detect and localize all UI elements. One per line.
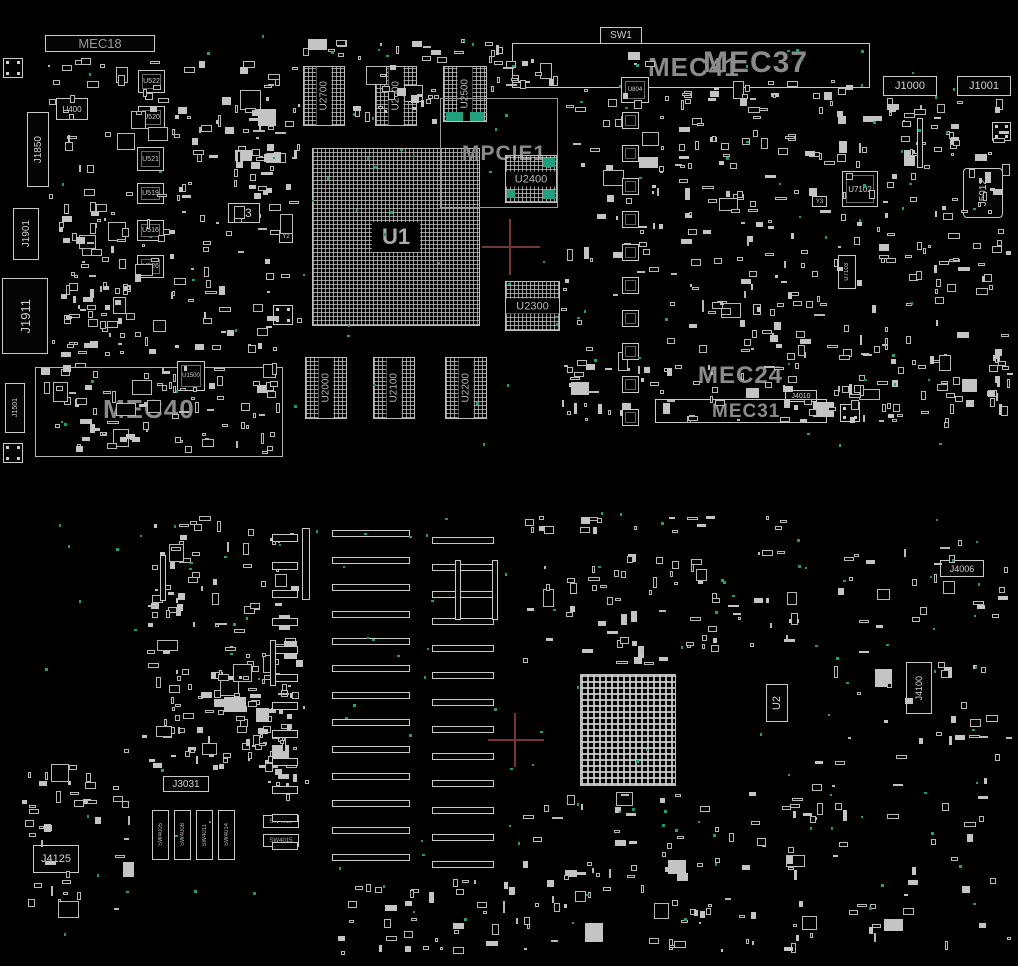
smd-part (660, 798, 665, 803)
smd-part (920, 607, 927, 615)
smd-part (753, 130, 758, 137)
smd-part (824, 161, 835, 165)
ic-u521-label: U521 (142, 156, 159, 163)
smd-part (774, 322, 781, 330)
smd-part (884, 720, 888, 723)
smd-part (191, 397, 195, 400)
smd-part (156, 677, 161, 688)
ic-u1500[interactable]: U1500 (177, 361, 205, 391)
smd-part (279, 544, 281, 546)
smd-part (253, 381, 260, 386)
smd-part (946, 131, 948, 134)
smd-part (89, 275, 96, 277)
ic-u804-label: U804 (628, 87, 642, 93)
smd-part (1006, 737, 1012, 739)
connector-j1911-label: J1911 (18, 299, 33, 333)
smd-part (332, 854, 410, 861)
smd-part (660, 390, 664, 394)
smd-part (262, 679, 265, 684)
smd-part (770, 335, 778, 342)
smd-part (885, 327, 888, 332)
smd-part (914, 109, 926, 115)
smd-part (380, 74, 386, 77)
smd-part (68, 135, 70, 142)
smd-part (246, 739, 250, 746)
smd-part (79, 600, 81, 603)
smd-part (87, 165, 94, 173)
smd-part (267, 291, 270, 293)
smd-part (248, 701, 257, 707)
smd-part (731, 209, 740, 213)
smd-part (51, 764, 69, 782)
smd-part (432, 672, 494, 679)
smd-part (524, 948, 527, 950)
smd-part (888, 414, 894, 418)
smd-part (674, 941, 686, 948)
smd-part (938, 662, 945, 668)
smd-part (774, 367, 784, 370)
smd-part (742, 94, 748, 99)
smd-part (250, 174, 256, 181)
smd-part (254, 193, 261, 199)
smd-part (386, 55, 389, 57)
smd-part (590, 148, 600, 152)
smd-part (573, 143, 581, 145)
smd-part (669, 517, 675, 519)
smd-part (111, 246, 114, 253)
ic-u2200[interactable]: U2200 (445, 357, 487, 419)
smd-part (348, 901, 357, 908)
smd-part (28, 899, 35, 907)
region-banner-mec18-label: MEC18 (78, 36, 121, 51)
smd-part (118, 75, 125, 86)
smd-part (935, 297, 944, 304)
smd-part (738, 617, 741, 620)
smd-part (235, 105, 238, 113)
smd-part (59, 222, 64, 228)
smd-part (887, 233, 895, 236)
smd-part (397, 655, 400, 657)
smd-part (681, 646, 683, 649)
smd-part (53, 80, 60, 85)
smd-part (751, 821, 760, 825)
smd-part (621, 614, 627, 625)
smd-part (901, 136, 910, 142)
smd-part (267, 316, 279, 321)
smd-part (272, 786, 298, 794)
smd-part (887, 182, 894, 188)
smd-part (88, 311, 93, 318)
smd-part (34, 883, 42, 888)
smd-part (928, 379, 930, 381)
smd-part (580, 527, 590, 533)
smd-part (940, 547, 950, 549)
smd-part (332, 611, 410, 618)
smd-part (89, 73, 91, 76)
smd-part (140, 535, 142, 537)
smd-part (982, 276, 985, 282)
smd-part (866, 560, 875, 564)
pcb-board-view: MEC18 MEC41 MEC37 SW1 J1850 J1901 J1911 … (0, 0, 1018, 966)
connector-j1501[interactable]: J1501 (5, 383, 25, 433)
smd-part (688, 163, 692, 169)
switch-sw1[interactable]: SW1 (600, 27, 642, 44)
smd-part (784, 400, 790, 408)
smd-part (61, 352, 71, 357)
smd-part (904, 549, 906, 557)
smd-part (760, 733, 762, 736)
smd-part (879, 420, 884, 422)
crystal-y3[interactable]: Y3 (812, 196, 827, 207)
smd-part (286, 184, 291, 190)
smd-part (918, 365, 926, 369)
smd-part (126, 313, 135, 320)
smd-part (863, 184, 866, 187)
smd-part (708, 311, 716, 314)
smd-part (597, 518, 602, 523)
smd-part (640, 230, 644, 234)
smd-part (768, 220, 772, 223)
connector-j1901[interactable]: J1901 (13, 208, 39, 260)
smd-part (217, 521, 221, 532)
smd-part (312, 200, 314, 202)
smd-part (874, 933, 876, 942)
smd-part (384, 919, 391, 928)
smd-part (809, 409, 817, 416)
smd-part (150, 61, 160, 64)
smd-part (97, 874, 99, 877)
switch-sw4011[interactable]: SW4011 (196, 810, 213, 860)
smd-part (587, 391, 599, 393)
smd-part (331, 51, 334, 54)
smd-part (188, 182, 192, 185)
smd-part (712, 387, 718, 393)
smd-part (223, 758, 228, 763)
smd-part (673, 860, 679, 865)
smd-part (91, 380, 94, 383)
smd-part (170, 254, 174, 259)
smd-part (147, 219, 150, 229)
smd-part (988, 152, 992, 155)
smd-part (955, 735, 965, 740)
smd-part (332, 530, 410, 537)
smd-part (543, 589, 554, 607)
smd-part (697, 863, 703, 867)
smd-part (628, 368, 630, 371)
smd-part (412, 107, 417, 110)
via-array (580, 674, 676, 786)
smd-part (157, 194, 167, 197)
smd-part (688, 416, 698, 421)
smd-part (453, 947, 464, 954)
smd-part (657, 188, 659, 196)
connector-j1001[interactable]: J1001 (957, 76, 1011, 96)
smd-part (585, 923, 603, 942)
smd-part (207, 409, 214, 411)
smd-part (272, 758, 298, 766)
smd-part (405, 946, 411, 952)
connector-j1000[interactable]: J1000 (883, 76, 937, 96)
smd-part (787, 353, 795, 360)
smd-part (177, 195, 180, 201)
smd-part (196, 756, 198, 764)
smd-part (175, 704, 181, 707)
smd-part (105, 305, 110, 310)
smd-part (78, 305, 80, 309)
smd-part (725, 898, 731, 900)
smd-part (453, 923, 464, 929)
smd-part (649, 267, 659, 272)
smd-part (587, 862, 592, 866)
smd-part (592, 868, 594, 873)
ic-u521[interactable]: U521 (137, 147, 164, 171)
smd-part (889, 106, 896, 112)
smd-part (836, 657, 839, 660)
smd-part (746, 141, 749, 143)
smd-part (775, 526, 782, 530)
smd-part (663, 403, 670, 414)
smd-part (84, 343, 92, 348)
ic-u2300[interactable]: U2300 (505, 281, 560, 331)
smd-part (751, 912, 756, 919)
smd-part (172, 414, 179, 419)
smd-part (942, 206, 946, 210)
smd-part (463, 40, 465, 42)
smd-part (928, 245, 931, 248)
smd-part (903, 908, 914, 915)
smd-part (935, 289, 938, 294)
smd-part (697, 524, 706, 527)
ic-u2000[interactable]: U2000 (305, 357, 347, 419)
smd-part (887, 683, 892, 688)
smd-part (212, 593, 219, 605)
smd-part (639, 242, 647, 247)
smd-part (171, 547, 181, 551)
smd-part (893, 784, 903, 786)
ic-u2100[interactable]: U2100 (373, 357, 415, 419)
smd-part (936, 519, 938, 521)
smd-part (410, 890, 414, 898)
smd-part (919, 738, 923, 744)
smd-part (302, 528, 310, 600)
smd-part (567, 367, 573, 373)
smd-part (243, 543, 249, 555)
ic-u7103-label: U7103 (844, 263, 850, 281)
smd-part (378, 106, 383, 109)
smd-part (846, 85, 853, 90)
smd-part (886, 644, 889, 646)
smd-part (267, 391, 276, 398)
connector-j1850[interactable]: J1850 (27, 112, 49, 187)
smd-part (90, 202, 96, 212)
smd-part (752, 330, 757, 338)
smd-part (367, 637, 369, 639)
smd-part (1007, 379, 1010, 388)
smd-part (753, 116, 761, 119)
ic-u2[interactable]: U2 (766, 684, 788, 722)
smd-part (584, 310, 586, 313)
smd-part (891, 359, 896, 364)
smd-part (843, 192, 846, 199)
smd-part (432, 861, 494, 868)
smd-part (41, 368, 50, 375)
smd-part (205, 710, 214, 713)
smd-part (146, 429, 148, 432)
smd-part (275, 769, 282, 775)
smd-part (268, 781, 271, 783)
connector-j4125[interactable]: J4125 (33, 845, 79, 873)
smd-part (592, 585, 597, 591)
connector-j4100[interactable]: J4100 (906, 662, 932, 714)
smd-part (253, 304, 263, 312)
smd-part (438, 262, 440, 264)
smd-part (677, 836, 684, 839)
smd-part (107, 421, 119, 424)
switch-sw4005[interactable]: SW4005 (152, 810, 169, 860)
smd-part (702, 186, 714, 189)
smd-part (176, 611, 181, 616)
smd-part (620, 637, 629, 644)
smd-part (345, 717, 348, 719)
smd-part (700, 806, 710, 812)
smd-part (248, 345, 256, 353)
smd-part (464, 918, 467, 921)
smd-part (202, 439, 214, 447)
smd-part (908, 880, 918, 885)
smd-part (184, 67, 195, 73)
smd-part (856, 161, 860, 168)
smd-part (144, 373, 149, 379)
smd-part (622, 112, 639, 129)
smd-part (720, 303, 724, 305)
smd-part (912, 867, 916, 875)
smd-part (204, 312, 206, 319)
smd-part (385, 905, 397, 911)
smd-part (859, 651, 869, 653)
smd-part (625, 107, 628, 109)
smd-part (157, 383, 163, 386)
smd-part (272, 730, 298, 738)
smd-part (959, 865, 962, 868)
smd-part (572, 922, 574, 924)
smd-part (122, 228, 129, 237)
ic-u7103[interactable]: U7103 (838, 255, 856, 289)
smd-part (733, 613, 741, 615)
smd-part (179, 411, 189, 413)
smd-part (972, 729, 975, 731)
smd-part (603, 120, 610, 127)
smd-part (332, 692, 410, 699)
ic-u2700[interactable]: U2700 (303, 66, 345, 126)
smd-part (206, 280, 211, 288)
smd-part (831, 80, 835, 83)
smd-part (100, 321, 106, 329)
smd-part (854, 237, 860, 245)
smd-part (510, 768, 513, 770)
smd-part (297, 318, 302, 323)
connector-j3031[interactable]: J3031 (163, 776, 209, 792)
smd-part (272, 562, 298, 570)
smd-part (729, 833, 734, 842)
smd-part (935, 96, 937, 99)
smd-part (173, 374, 176, 382)
smd-part (577, 803, 579, 806)
smd-part (154, 524, 157, 528)
smd-part (675, 164, 682, 166)
smd-part (574, 403, 577, 414)
smd-part (639, 157, 658, 168)
smd-part (785, 136, 795, 139)
smd-part (427, 648, 429, 650)
smd-part (904, 113, 915, 118)
smd-part (708, 626, 717, 632)
smd-part (61, 421, 63, 423)
smd-part (921, 391, 926, 400)
smd-part (172, 707, 175, 711)
connector-j1911[interactable]: J1911 (2, 278, 48, 354)
smd-part (659, 610, 666, 612)
smd-part (240, 67, 248, 74)
smd-part (201, 692, 212, 698)
smd-part (81, 58, 91, 65)
smd-part (844, 557, 854, 561)
smd-part (697, 123, 704, 126)
smd-part (80, 309, 86, 311)
smd-part (748, 209, 758, 212)
smd-part (275, 79, 280, 86)
connector-j4006[interactable]: J4006 (940, 560, 984, 577)
smd-part (911, 302, 913, 305)
smd-part (810, 933, 813, 938)
smd-part (65, 142, 73, 151)
smd-part (905, 255, 912, 258)
smd-part (679, 144, 685, 151)
smd-part (505, 114, 508, 117)
smd-part (258, 343, 262, 349)
smd-part (274, 152, 281, 162)
smd-part (432, 645, 494, 652)
smd-part (586, 364, 595, 370)
smd-part (107, 443, 117, 449)
smd-part (169, 685, 180, 693)
smd-part (664, 810, 667, 813)
smd-part (665, 96, 669, 101)
smd-part (892, 354, 895, 357)
smd-part (267, 446, 273, 451)
smd-part (830, 794, 832, 796)
switch-sw4014[interactable]: SW4014 (218, 810, 235, 860)
smd-part (453, 879, 458, 887)
smd-part (661, 522, 664, 525)
smd-part (634, 657, 642, 664)
smd-part (296, 660, 303, 667)
smd-part (575, 107, 586, 112)
smd-part (552, 817, 563, 819)
smd-part (175, 715, 180, 721)
smd-part (607, 195, 614, 202)
smd-part (964, 822, 976, 827)
smd-part (148, 623, 153, 627)
smd-part (63, 892, 68, 895)
smd-part (607, 597, 613, 605)
smd-part (788, 293, 792, 299)
smd-part (195, 344, 204, 350)
smd-part (569, 383, 575, 387)
smd-part (564, 875, 569, 880)
smd-part (546, 638, 553, 641)
smd-part (218, 115, 221, 127)
smd-part (216, 222, 219, 224)
